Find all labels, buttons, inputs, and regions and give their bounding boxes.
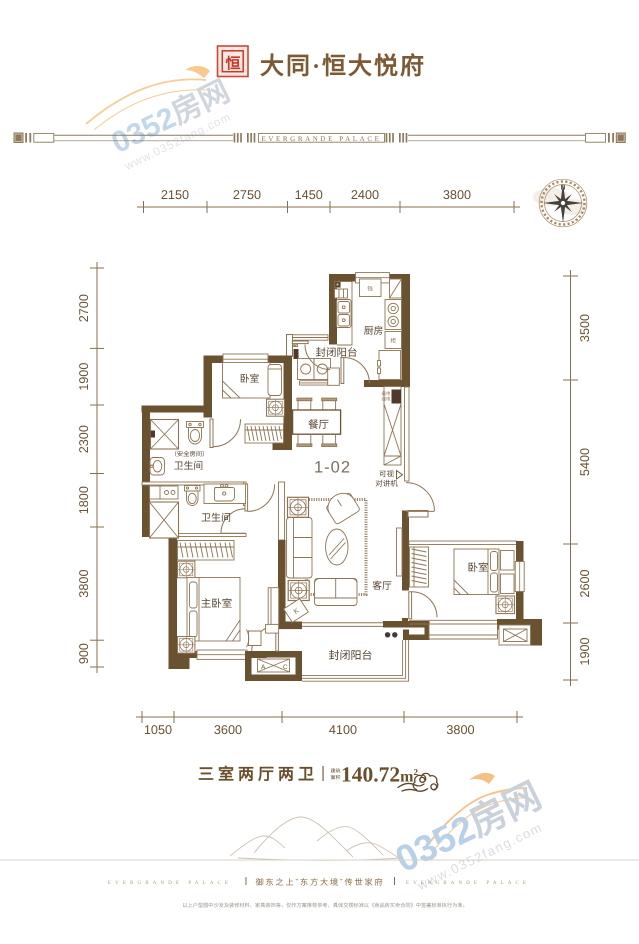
svg-text:1900: 1900 [578, 637, 592, 665]
svg-text:EVERGRANDE PALACE: EVERGRANDE PALACE [108, 880, 232, 886]
svg-text:1450: 1450 [295, 188, 323, 202]
svg-text:卫生间: 卫生间 [174, 460, 203, 472]
svg-text:餐厅: 餐厅 [308, 419, 329, 431]
svg-text:封闭阳台: 封闭阳台 [316, 347, 358, 359]
svg-text:可视: 可视 [379, 470, 394, 479]
svg-text:2600: 2600 [578, 569, 592, 597]
svg-text:5400: 5400 [578, 448, 592, 476]
svg-text:（安全房间）: （安全房间） [171, 450, 209, 458]
svg-text:三室两厅两卫: 三室两厅两卫 [198, 766, 318, 784]
svg-text:EVERGRANDE PALACE: EVERGRANDE PALACE [406, 880, 530, 886]
svg-text:A: A [261, 664, 266, 671]
svg-text:1-02: 1-02 [314, 459, 351, 477]
svg-text:1050: 1050 [144, 723, 172, 737]
svg-text:C: C [283, 664, 288, 671]
svg-text:3600: 3600 [214, 723, 242, 737]
svg-text:强电: 强电 [382, 397, 391, 402]
svg-text:2750: 2750 [233, 188, 261, 202]
svg-text:2150: 2150 [161, 188, 189, 202]
svg-text:卧室: 卧室 [240, 373, 260, 385]
svg-text:2700: 2700 [77, 294, 91, 322]
svg-text:御东之上ˇ东方大境ˇ传世家府: 御东之上ˇ东方大境ˇ传世家府 [256, 878, 385, 887]
svg-text:4100: 4100 [329, 723, 357, 737]
svg-text:3500: 3500 [578, 314, 592, 342]
svg-text:1900: 1900 [77, 363, 91, 391]
svg-text:建筑: 建筑 [331, 768, 341, 775]
svg-text:3800: 3800 [446, 723, 474, 737]
svg-text:弱电: 弱电 [382, 391, 391, 396]
svg-text:2400: 2400 [351, 188, 379, 202]
svg-text:厨房: 厨房 [364, 325, 384, 337]
svg-text:1800: 1800 [77, 486, 91, 514]
svg-text:900: 900 [77, 643, 91, 664]
svg-text:大同·恒大悦府: 大同·恒大悦府 [260, 53, 426, 80]
svg-text:2300: 2300 [77, 425, 91, 453]
svg-text:恒: 恒 [225, 56, 240, 73]
svg-text:卧室: 卧室 [468, 562, 489, 574]
svg-text:封闭阳台: 封闭阳台 [329, 649, 373, 662]
svg-text:以上户型图中沙发及装修材料、家具装饰等，仅作方案推荐参考，具: 以上户型图中沙发及装修材料、家具装饰等，仅作方案推荐参考，具体交楼标准以《商品房… [182, 902, 467, 909]
svg-text:EVERGRANDE PALACE: EVERGRANDE PALACE [262, 135, 382, 143]
svg-text:主卧室: 主卧室 [201, 598, 233, 610]
svg-text:柜: 柜 [390, 338, 396, 345]
svg-text:面积: 面积 [331, 774, 341, 781]
svg-text:3800: 3800 [77, 569, 91, 597]
svg-text:N: N [561, 185, 566, 192]
svg-text:卫生间: 卫生间 [201, 512, 231, 524]
svg-text:对讲机: 对讲机 [375, 479, 398, 488]
svg-text:客厅: 客厅 [372, 580, 392, 592]
svg-text:3800: 3800 [443, 188, 471, 202]
svg-text:铛: 铛 [367, 286, 373, 293]
